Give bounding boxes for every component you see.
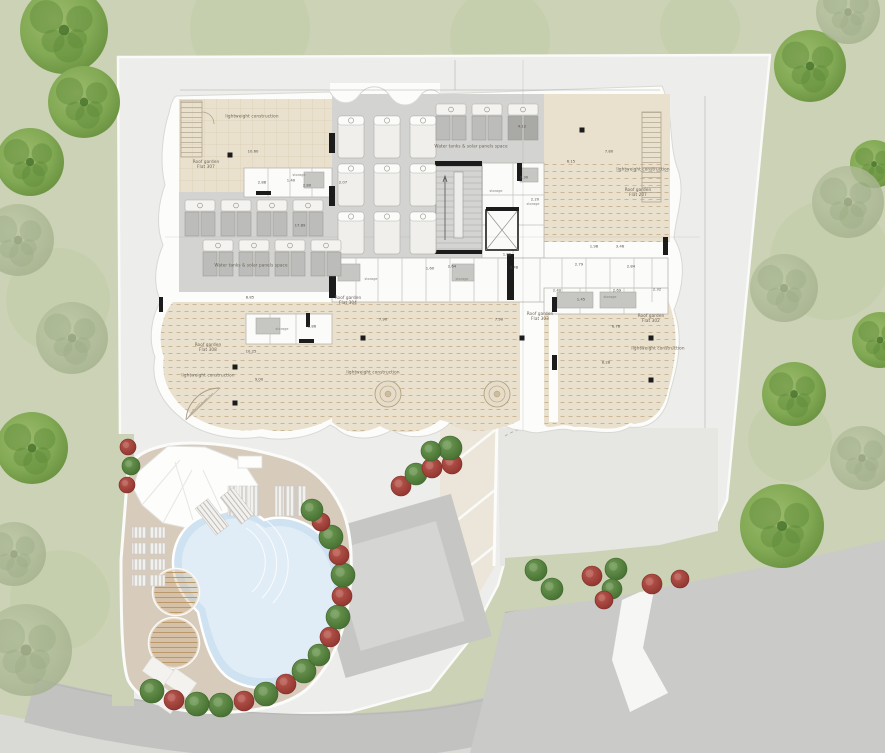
wall-mark [517, 163, 522, 181]
unit-cap [203, 240, 233, 251]
column-dot [233, 365, 238, 370]
stacked-lounger [150, 575, 165, 586]
panel-right [219, 252, 233, 276]
panel-left [185, 212, 199, 236]
bush [308, 644, 330, 666]
tree-center [780, 284, 788, 292]
tree-foliage [86, 82, 108, 104]
bush-highlight [545, 582, 554, 591]
bush-highlight [305, 503, 314, 512]
tree-foliage [66, 6, 92, 32]
tree-foliage [813, 65, 829, 81]
lounger-pillow [410, 116, 436, 125]
roof-sun-loungers [338, 116, 436, 254]
tree-foliage [786, 269, 806, 289]
bush [421, 441, 441, 461]
tree-foliage [21, 239, 37, 255]
panel-left [472, 116, 486, 140]
bush [438, 436, 462, 460]
column-dot [233, 401, 238, 406]
bush-highlight [598, 594, 605, 601]
tree [36, 302, 108, 374]
building [151, 60, 705, 439]
column-dot [520, 336, 525, 341]
bush [671, 570, 689, 588]
unit-cap [293, 200, 323, 211]
tree-center [806, 62, 815, 71]
bush-highlight [409, 467, 418, 476]
deck-lounger [275, 486, 284, 516]
tree-foliage [30, 0, 63, 33]
bush-highlight [213, 697, 223, 707]
bush [326, 605, 350, 629]
panel-right [237, 212, 251, 236]
tree-foliage [757, 265, 783, 291]
panel-right [488, 116, 502, 140]
stair-core [436, 166, 482, 252]
tree-foliage [68, 29, 87, 48]
tree [762, 362, 826, 426]
tree-foliage [20, 220, 42, 242]
lounger-pillow [374, 164, 400, 173]
wall-mark [159, 297, 163, 312]
bush [301, 499, 323, 521]
tree [750, 254, 818, 322]
wall-mark [552, 355, 557, 370]
stacked-lounger [132, 559, 147, 570]
wall-mark [256, 191, 271, 195]
tree-foliage [74, 318, 96, 340]
unit-cap [185, 200, 215, 211]
bush [122, 457, 140, 475]
tree-foliage [28, 625, 56, 653]
tree-center [68, 334, 77, 343]
sun-lounger [338, 212, 364, 254]
panel-left [203, 252, 217, 276]
column-dot [580, 128, 585, 133]
unit-cap [311, 240, 341, 251]
panel-left [311, 252, 325, 276]
wall-mark [329, 133, 335, 153]
wall-mark [552, 297, 557, 312]
tree-foliage [782, 42, 809, 69]
tree-center [858, 454, 866, 462]
bush-highlight [646, 578, 654, 586]
bush-highlight [125, 460, 132, 467]
tree-foliage [32, 143, 52, 163]
tree-center [844, 8, 852, 16]
tree-center [10, 550, 18, 558]
tree-foliage [865, 457, 879, 471]
unit-cap [239, 240, 269, 251]
tree-foliage [35, 447, 51, 463]
lounger-pillow [410, 212, 436, 221]
bush [332, 586, 352, 606]
tree-center [59, 25, 70, 36]
tree-foliage [33, 161, 48, 176]
bush-highlight [312, 648, 321, 657]
stacked-lounger [132, 527, 147, 538]
tree-foliage [75, 337, 91, 353]
bush-highlight [425, 445, 433, 453]
sun-lounger [374, 212, 400, 254]
panel-left [436, 116, 450, 140]
bush-highlight [395, 480, 403, 488]
tree [48, 66, 120, 138]
bush [120, 439, 136, 455]
sun-lounger [338, 116, 364, 158]
wall-mark [435, 161, 482, 166]
bush-highlight [606, 583, 614, 591]
tree-foliage [16, 536, 35, 555]
bush [331, 563, 355, 587]
bush-highlight [529, 563, 538, 572]
bush-highlight [123, 442, 129, 448]
tree-foliage [784, 503, 809, 528]
tree-foliage [4, 424, 31, 451]
bush-highlight [609, 562, 618, 571]
sun-lounger [410, 164, 436, 206]
tree-center [80, 98, 89, 107]
bush [525, 559, 547, 581]
tree-foliage [787, 287, 802, 302]
panel-right [201, 212, 215, 236]
tree-foliage [87, 101, 103, 117]
lounger-pillow [338, 212, 364, 221]
unit-cap [257, 200, 287, 211]
tree-center [871, 161, 877, 167]
bush [185, 692, 209, 716]
panel-left [508, 116, 522, 140]
tree-foliage [851, 11, 865, 25]
column-dot [649, 378, 654, 383]
panel-left [257, 212, 271, 236]
wall-mark [507, 254, 514, 300]
panel-right [309, 212, 323, 236]
tree-foliage [858, 321, 879, 342]
bush-highlight [296, 663, 306, 673]
bush-highlight [144, 683, 154, 693]
column-dot [649, 336, 654, 341]
unit-cap [221, 200, 251, 211]
unit-cap [508, 104, 538, 115]
tree-foliage [30, 649, 50, 669]
panel-right [273, 212, 287, 236]
tree-center [20, 644, 31, 655]
tree-foliage [850, 182, 872, 204]
bush-highlight [426, 462, 434, 470]
tree-foliage [56, 78, 83, 105]
panel-left [221, 212, 235, 236]
sun-lounger [374, 116, 400, 158]
stacked-lounger [132, 543, 147, 554]
bush [140, 679, 164, 703]
lounger-pillow [338, 164, 364, 173]
bush [320, 627, 340, 647]
bush [119, 477, 135, 493]
deck-lounger [286, 486, 295, 516]
tree-foliage [855, 148, 873, 166]
bush-highlight [189, 696, 199, 706]
tree-center [790, 390, 798, 398]
bush-highlight [258, 686, 268, 696]
tree-foliage [797, 393, 811, 407]
sun-lounger [410, 212, 436, 254]
panel-left [275, 252, 289, 276]
tree-foliage [796, 376, 815, 395]
site-plan-canvas: lightweight constructionRoof garden Flat… [0, 0, 885, 753]
bush-highlight [122, 480, 128, 486]
panel-right [524, 116, 538, 140]
bush-highlight [324, 631, 332, 639]
stacked-lounger [150, 543, 165, 554]
tree-foliage [864, 440, 883, 459]
stacked-lounger [150, 527, 165, 538]
tree-foliage [749, 497, 781, 529]
bush-highlight [674, 573, 681, 580]
wall-mark [306, 313, 310, 327]
wall-mark [663, 237, 668, 255]
tree-foliage [17, 553, 31, 567]
stacked-lounger [132, 575, 147, 586]
sun-lounger [374, 164, 400, 206]
column-dot [361, 336, 366, 341]
tree-foliage [3, 139, 29, 165]
tree-foliage [837, 436, 861, 460]
bush-highlight [323, 529, 333, 539]
column-dot [228, 153, 233, 158]
tree-foliage [34, 428, 56, 450]
stacked-lounger [150, 559, 165, 570]
tree-center [777, 521, 787, 531]
tree-center [14, 236, 23, 245]
tree-center [26, 158, 34, 166]
bush [209, 693, 233, 717]
tree [740, 484, 824, 568]
sun-lounger [410, 116, 436, 158]
bush [234, 691, 254, 711]
panel-left [293, 212, 307, 236]
tree-foliage [769, 372, 793, 396]
bush-highlight [335, 567, 345, 577]
bush [164, 690, 184, 710]
wall-mark [299, 339, 314, 343]
tree-foliage [820, 178, 847, 205]
tree-foliage [812, 46, 834, 68]
bush [541, 578, 563, 600]
bush-highlight [586, 570, 594, 578]
bush-highlight [280, 678, 288, 686]
wall-mark [329, 186, 335, 206]
bush-highlight [168, 694, 176, 702]
wall-mark [435, 250, 482, 254]
wall-mark [486, 207, 519, 211]
unit-cap [436, 104, 466, 115]
bush-highlight [336, 590, 344, 598]
unit-cap [472, 104, 502, 115]
elevator [486, 210, 518, 250]
bush-highlight [333, 549, 341, 557]
bush [276, 674, 296, 694]
lounger-pillow [410, 164, 436, 173]
bush [605, 558, 627, 580]
panel-right [327, 252, 341, 276]
tree-center [28, 444, 37, 453]
bush [254, 682, 278, 706]
lounger-pillow [338, 116, 364, 125]
unit-cap [275, 240, 305, 251]
bush [595, 591, 613, 609]
tree-center [844, 198, 853, 207]
site-plan-drawing [0, 0, 885, 753]
bush-highlight [442, 440, 452, 450]
bush [582, 566, 602, 586]
tree-foliage [785, 525, 803, 543]
panel-right [255, 252, 269, 276]
tree-foliage [44, 314, 71, 341]
panel-right [452, 116, 466, 140]
panel-left [239, 252, 253, 276]
tree-center [877, 337, 884, 344]
sun-lounger [338, 164, 364, 206]
panel-right [291, 252, 305, 276]
tree [812, 166, 884, 238]
lounger-pillow [374, 116, 400, 125]
tree-foliage [851, 201, 867, 217]
bush-highlight [238, 695, 246, 703]
bush-highlight [330, 609, 340, 619]
lounger-pillow [374, 212, 400, 221]
bush [642, 574, 662, 594]
